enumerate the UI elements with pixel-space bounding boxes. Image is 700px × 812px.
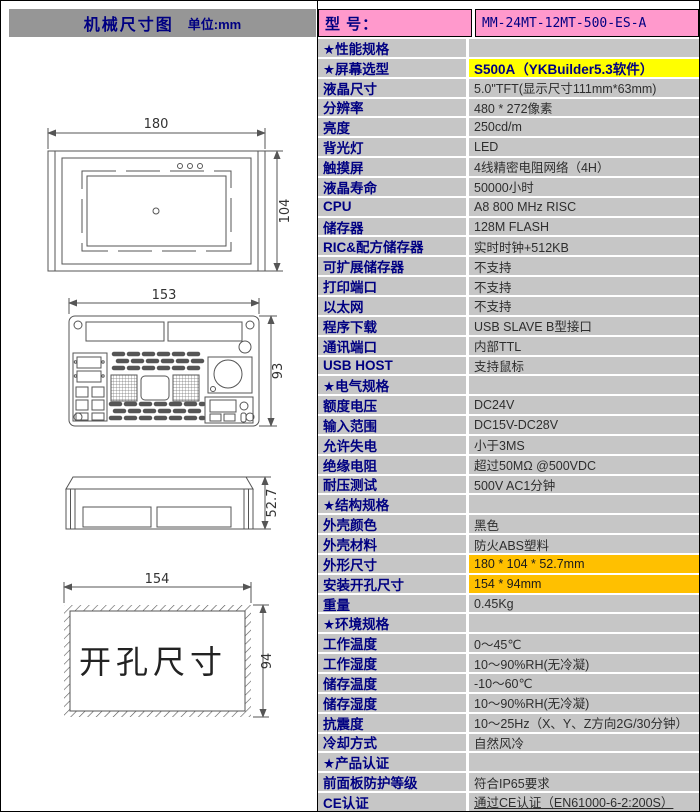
spec-label: 液晶尺寸 [318, 79, 466, 97]
spec-value: 5.0"TFT(显示尺寸111mm*63mm) [469, 79, 699, 97]
spec-row: 触摸屏 4线精密电阻网络（4H） [318, 158, 699, 176]
side-depth-dim: 52.7 [265, 489, 280, 518]
spec-label: ★环境规格 [318, 614, 466, 632]
spec-row: 程序下载 USB SLAVE B型接口 [318, 317, 699, 335]
spec-row: 外壳材料 防火ABS塑料 [318, 535, 699, 553]
spec-value: 154 * 94mm [469, 575, 699, 593]
spec-value: 实时时钟+512KB [469, 237, 699, 255]
spec-row: 前面板防护等级 符合IP65要求 [318, 773, 699, 791]
back-view-drawing: 153 93 [53, 291, 293, 441]
front-height-dim: 104 [278, 199, 293, 224]
spec-value: 180 * 104 * 52.7mm [469, 555, 699, 573]
spec-row: 输入范围 DC15V-DC28V [318, 416, 699, 434]
spec-value: DC15V-DC28V [469, 416, 699, 434]
spec-row: 冷却方式 自然风冷 [318, 734, 699, 752]
spec-row: ★结构规格 [318, 495, 699, 513]
spec-value: DC24V [469, 396, 699, 414]
spec-value [469, 376, 699, 394]
spec-value: USB SLAVE B型接口 [469, 317, 699, 335]
spec-value: 超过50MΩ @500VDC [469, 456, 699, 474]
model-header-row: 型 号： MM-24MT-12MT-500-ES-A [318, 9, 699, 37]
cutout-drawing: 154 94 开孔尺寸 [49, 577, 299, 747]
spec-label: 可扩展储存器 [318, 257, 466, 275]
spec-value: 0.45Kg [469, 595, 699, 613]
spec-label: 外形尺寸 [318, 555, 466, 573]
spec-row: ★性能规格 [318, 39, 699, 57]
spec-label: 程序下载 [318, 317, 466, 335]
spec-value: 不支持 [469, 257, 699, 275]
spec-value: 10～90%RH(无冷凝) [469, 654, 699, 672]
spec-value: 小于3MS [469, 436, 699, 454]
drawing-panel-header: 机械尺寸图 单位:mm [9, 9, 316, 37]
spec-row: 亮度 250cd/m [318, 118, 699, 136]
spec-label: 分辨率 [318, 99, 466, 117]
spec-value: 50000小时 [469, 178, 699, 196]
spec-label: 输入范围 [318, 416, 466, 434]
spec-value [469, 39, 699, 57]
spec-label: 绝缘电阻 [318, 456, 466, 474]
drawing-title: 机械尺寸图 [84, 11, 174, 35]
spec-row: 绝缘电阻 超过50MΩ @500VDC [318, 456, 699, 474]
back-height-dim: 93 [271, 363, 286, 380]
spec-label: 液晶寿命 [318, 178, 466, 196]
spec-label: ★电气规格 [318, 376, 466, 394]
spec-label: 工作温度 [318, 634, 466, 652]
spec-label: 抗震度 [318, 714, 466, 732]
spec-label: 外壳材料 [318, 535, 466, 553]
spec-label: 储存湿度 [318, 694, 466, 712]
spec-value: LED [469, 138, 699, 156]
spec-value: 480 * 272像素 [469, 99, 699, 117]
spec-value: 0～45℃ [469, 634, 699, 652]
spec-row: 耐压测试 500V AC1分钟 [318, 476, 699, 494]
spec-value: 500V AC1分钟 [469, 476, 699, 494]
spec-row: 储存湿度 10～90%RH(无冷凝) [318, 694, 699, 712]
spec-label: ★屏幕选型 [318, 59, 466, 77]
spec-label: 耐压测试 [318, 476, 466, 494]
spec-value [469, 614, 699, 632]
spec-label: 工作湿度 [318, 654, 466, 672]
spec-row: 外形尺寸 180 * 104 * 52.7mm [318, 555, 699, 573]
spec-row: ★产品认证 [318, 753, 699, 771]
spec-label: 以太网 [318, 297, 466, 315]
spec-row: 抗震度 10～25Hz（X、Y、Z方向2G/30分钟） [318, 714, 699, 732]
spec-sheet-page: 机械尺寸图 单位:mm [0, 0, 700, 812]
spec-value: 128M FLASH [469, 218, 699, 236]
spec-row: CE认证 通过CE认证（EN61000-6-2:200S） [318, 793, 699, 811]
spec-label: ★结构规格 [318, 495, 466, 513]
spec-value: 黑色 [469, 515, 699, 533]
spec-value: -10～60℃ [469, 674, 699, 692]
spec-row: USB HOST 支持鼠标 [318, 357, 699, 375]
spec-row: 通讯端口 内部TTL [318, 337, 699, 355]
spec-row: CPU A8 800 MHz RISC [318, 198, 699, 216]
spec-value: 10～25Hz（X、Y、Z方向2G/30分钟） [469, 714, 699, 732]
spec-row: 允许失电 小于3MS [318, 436, 699, 454]
drawing-unit: 单位:mm [188, 14, 241, 33]
cutout-width-dim: 154 [145, 572, 170, 587]
spec-table: ★性能规格 ★屏幕选型 S500A（YKBuilder5.3软件） 液晶尺寸 5… [318, 39, 699, 811]
spec-label: 背光灯 [318, 138, 466, 156]
front-view-drawing: 180 104 [29, 109, 307, 284]
spec-row: 外壳颜色 黑色 [318, 515, 699, 533]
spec-value: 不支持 [469, 277, 699, 295]
spec-value: 不支持 [469, 297, 699, 315]
spec-value: 通过CE认证（EN61000-6-2:200S） [469, 793, 699, 811]
spec-row: 打印端口 不支持 [318, 277, 699, 295]
spec-label: RIC&配方储存器 [318, 237, 466, 255]
spec-label: 触摸屏 [318, 158, 466, 176]
spec-value: 内部TTL [469, 337, 699, 355]
spec-value: 防火ABS塑料 [469, 535, 699, 553]
spec-value: S500A（YKBuilder5.3软件） [469, 59, 699, 77]
spec-row: ★屏幕选型 S500A（YKBuilder5.3软件） [318, 59, 699, 77]
side-view-drawing: 52.7 [53, 469, 293, 549]
spec-row: 额度电压 DC24V [318, 396, 699, 414]
spec-label: 额度电压 [318, 396, 466, 414]
spec-value: 10～90%RH(无冷凝) [469, 694, 699, 712]
spec-label: 通讯端口 [318, 337, 466, 355]
spec-label: 亮度 [318, 118, 466, 136]
spec-value: 4线精密电阻网络（4H） [469, 158, 699, 176]
spec-value: 自然风冷 [469, 734, 699, 752]
spec-table-panel: 型 号： MM-24MT-12MT-500-ES-A ★性能规格 ★屏幕选型 S… [318, 1, 699, 811]
spec-label: 前面板防护等级 [318, 773, 466, 791]
spec-row: ★电气规格 [318, 376, 699, 394]
spec-label: 外壳颜色 [318, 515, 466, 533]
spec-row: 重量 0.45Kg [318, 595, 699, 613]
spec-value: 支持鼠标 [469, 357, 699, 375]
spec-label: 重量 [318, 595, 466, 613]
spec-label: 打印端口 [318, 277, 466, 295]
spec-row: 以太网 不支持 [318, 297, 699, 315]
spec-label: ★产品认证 [318, 753, 466, 771]
spec-value [469, 495, 699, 513]
front-width-dim: 180 [144, 117, 169, 132]
spec-label: USB HOST [318, 357, 466, 375]
model-label: 型 号： [318, 9, 472, 37]
model-number: MM-24MT-12MT-500-ES-A [475, 9, 699, 37]
spec-row: 工作湿度 10～90%RH(无冷凝) [318, 654, 699, 672]
back-width-dim: 153 [152, 288, 177, 303]
spec-value: A8 800 MHz RISC [469, 198, 699, 216]
spec-row: ★环境规格 [318, 614, 699, 632]
spec-row: 工作温度 0～45℃ [318, 634, 699, 652]
spec-value [469, 753, 699, 771]
spec-row: 液晶尺寸 5.0"TFT(显示尺寸111mm*63mm) [318, 79, 699, 97]
spec-label: 储存温度 [318, 674, 466, 692]
spec-row: 液晶寿命 50000小时 [318, 178, 699, 196]
spec-label: 冷却方式 [318, 734, 466, 752]
spec-label: 安装开孔尺寸 [318, 575, 466, 593]
spec-label: 储存器 [318, 218, 466, 236]
cutout-height-dim: 94 [260, 653, 275, 670]
cutout-label: 开孔尺寸 [79, 644, 227, 680]
spec-row: 可扩展储存器 不支持 [318, 257, 699, 275]
spec-value: 250cd/m [469, 118, 699, 136]
mechanical-drawing-panel: 机械尺寸图 单位:mm [1, 1, 318, 811]
spec-label: CE认证 [318, 793, 466, 811]
spec-row: 安装开孔尺寸 154 * 94mm [318, 575, 699, 593]
spec-row: 分辨率 480 * 272像素 [318, 99, 699, 117]
spec-row: RIC&配方储存器 实时时钟+512KB [318, 237, 699, 255]
spec-label: CPU [318, 198, 466, 216]
spec-row: 储存温度 -10～60℃ [318, 674, 699, 692]
spec-row: 背光灯 LED [318, 138, 699, 156]
spec-row: 储存器 128M FLASH [318, 218, 699, 236]
spec-label: ★性能规格 [318, 39, 466, 57]
spec-label: 允许失电 [318, 436, 466, 454]
spec-value: 符合IP65要求 [469, 773, 699, 791]
